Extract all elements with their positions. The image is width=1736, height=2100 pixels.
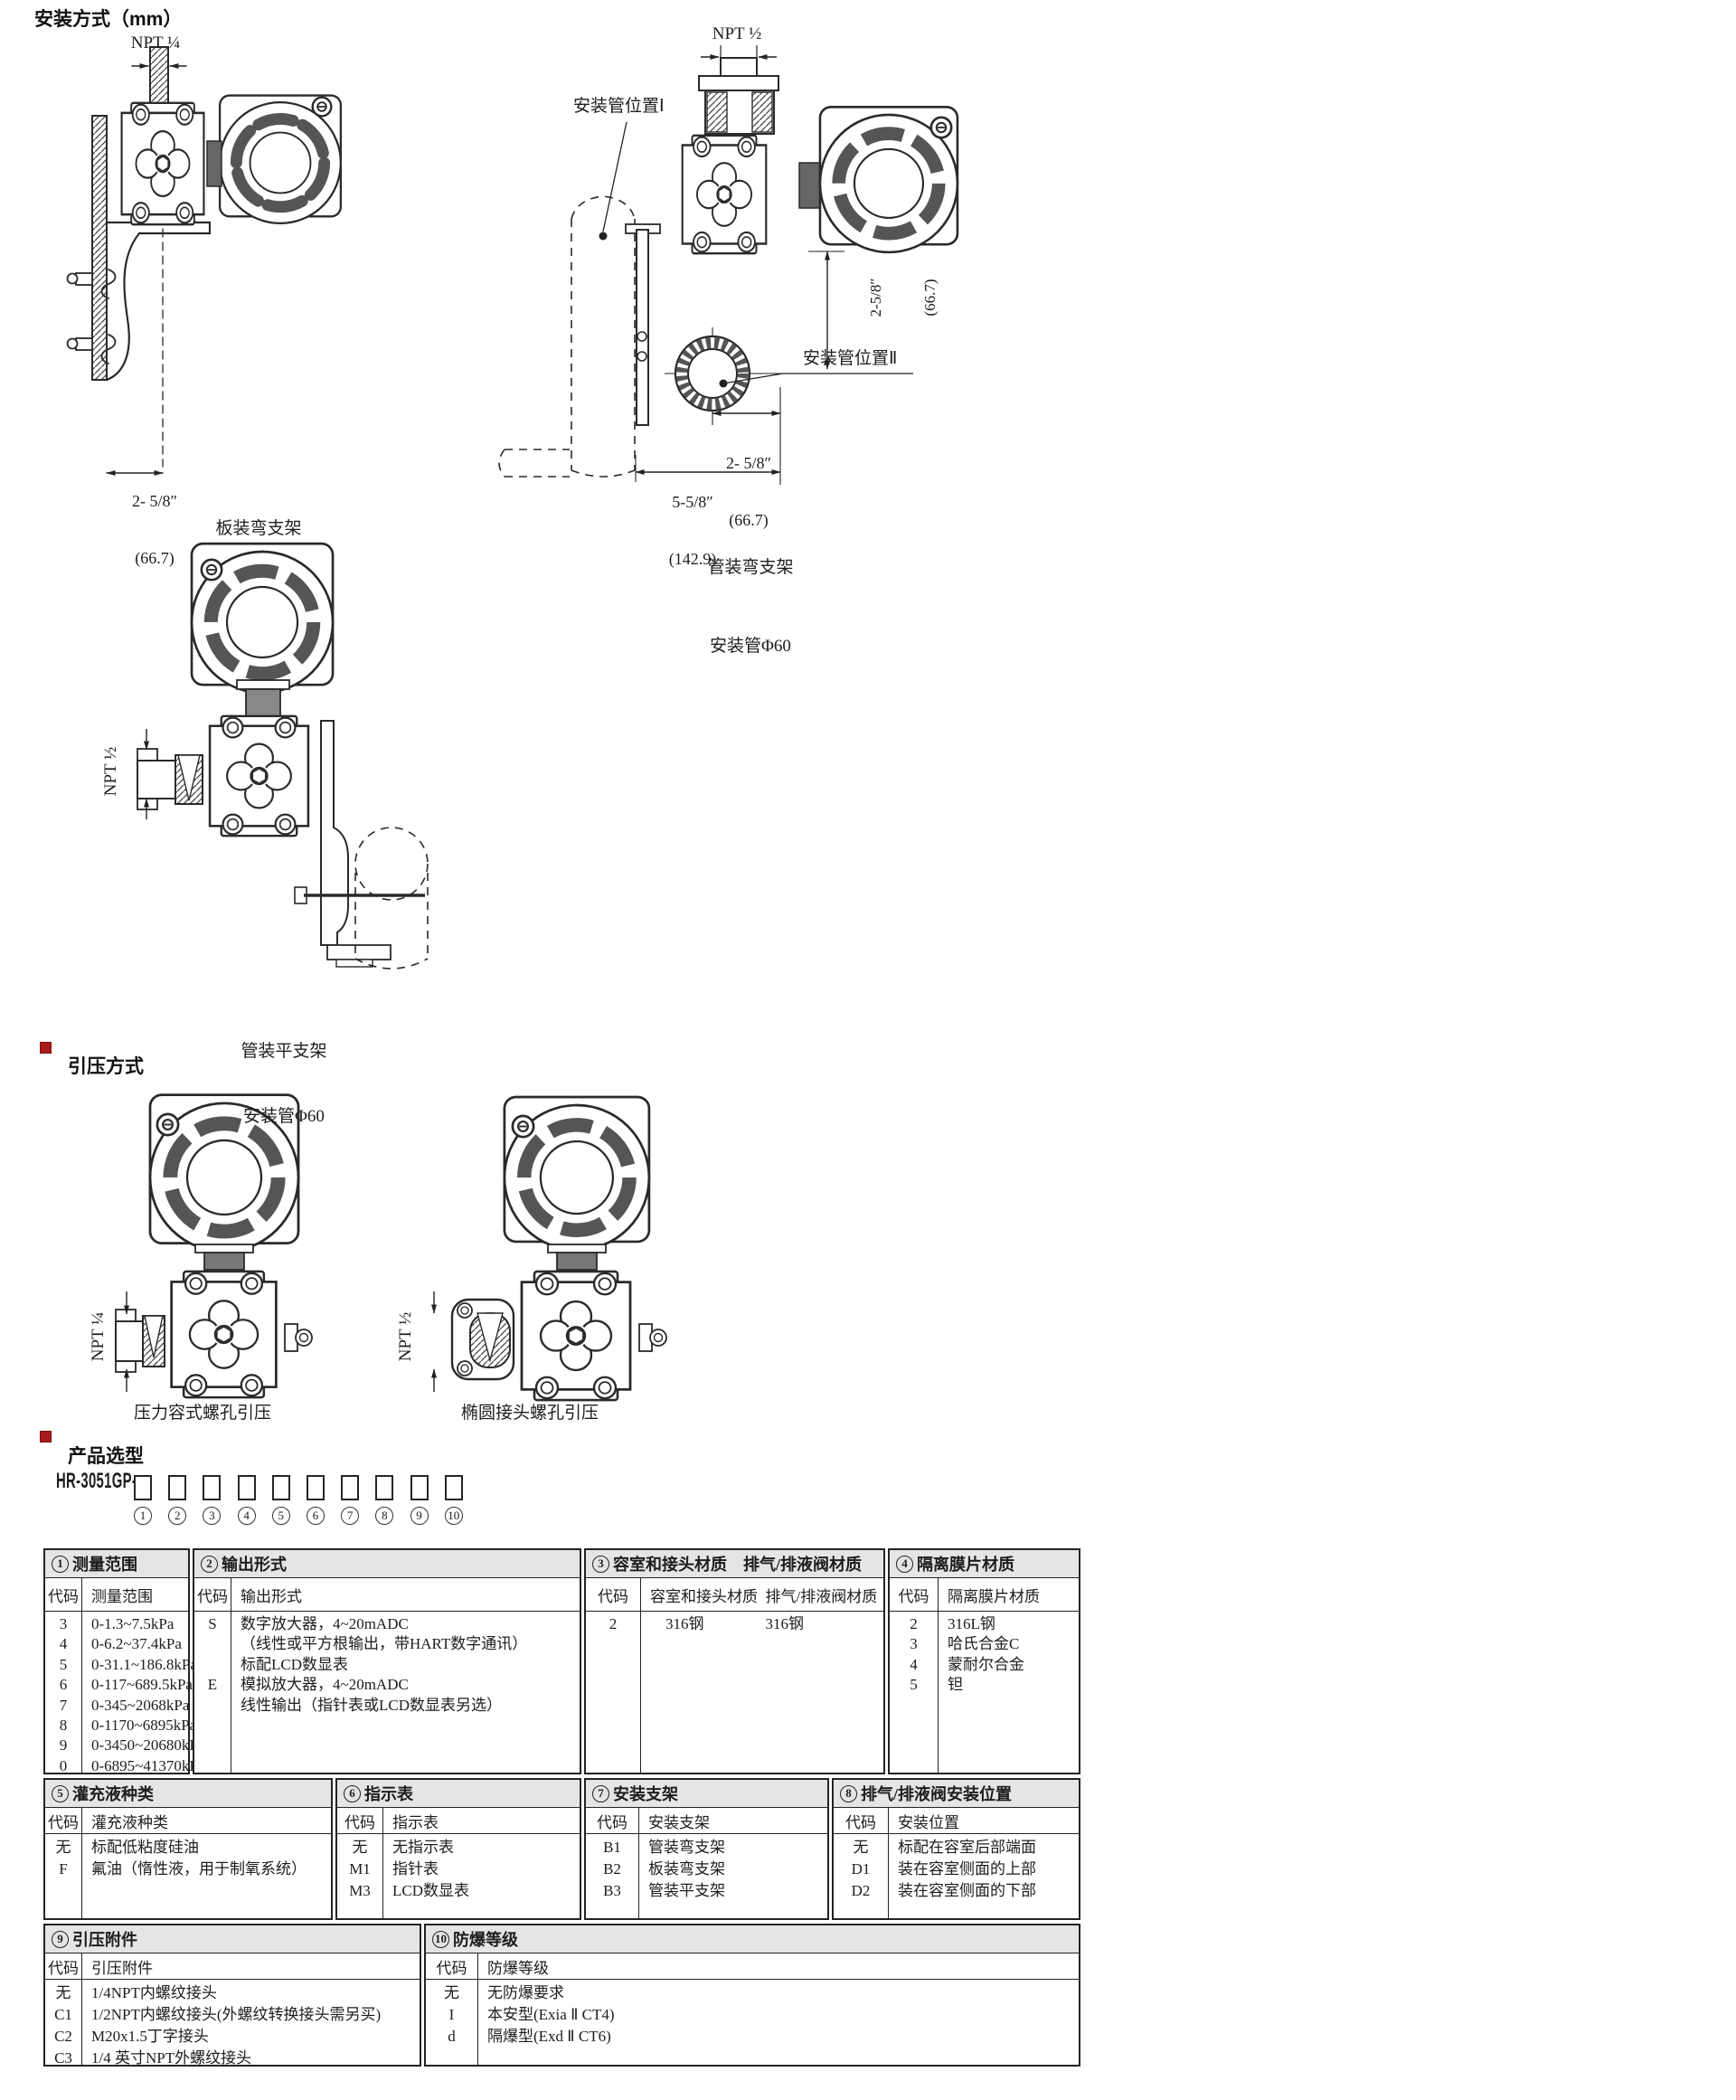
code-column: 无Id [426, 1980, 478, 2065]
section-title: 灌充液种类 [72, 1782, 154, 1805]
section-body: 无M1M3无指示表指针表LCD数显表 [337, 1834, 580, 1918]
section-number: 9 [52, 1931, 69, 1948]
value-cell: 1/4NPT内螺纹接头 [91, 1982, 420, 2004]
code-column: SE [194, 1612, 231, 1773]
code-cell [194, 1696, 231, 1716]
section-subheader: 代码防爆等级 [426, 1953, 1079, 1980]
value-column-header: 指示表 [383, 1808, 439, 1833]
section-header: 9引压附件 [45, 1925, 420, 1953]
value-cell: 316L钢 [948, 1614, 1079, 1634]
section-header: 7安装支架 [586, 1780, 827, 1808]
fig2-vertical-dimension: 2-5/8″ (66.7) [831, 254, 869, 341]
fig4-npt-label: NPT ¼ [89, 1295, 114, 1378]
value-column: 数字放大器，4~20mADC（线性或平方根输出，带HART数字通讯）标配LCD数… [231, 1612, 580, 1773]
code-cell: 4 [45, 1634, 81, 1654]
value-cell: 标配LCD数显表 [241, 1655, 580, 1675]
pressure-section-marker-icon [40, 1042, 52, 1054]
table-section-7: 7安装支架代码安装支架B1B2B3管装弯支架板装弯支架管装平支架 [584, 1778, 829, 1920]
section-header: 5灌充液种类 [45, 1780, 331, 1808]
section-title: 隔离膜片材质 [917, 1552, 1014, 1575]
code-cell: 9 [45, 1736, 81, 1755]
code-cell [194, 1655, 231, 1675]
value-column-header: 安装位置 [889, 1808, 959, 1833]
table-section-9: 9引压附件代码引压附件无C1C2C31/4NPT内螺纹接头1/2NPT内螺纹接头… [43, 1924, 421, 2067]
section-title: 输出形式 [222, 1552, 287, 1575]
position-number: 7 [341, 1507, 359, 1525]
table-section-3: 3容室和接头材质 排气/排液阀材质代码容室和接头材质 排气/排液阀材质2 316… [584, 1548, 885, 1774]
section-number: 6 [344, 1785, 361, 1802]
code-cell: 无 [45, 1837, 81, 1859]
panel-bracket-figure [68, 47, 341, 473]
value-cell: 本安型(Exia Ⅱ CT4) [487, 2004, 1079, 2026]
section-header: 6指示表 [337, 1780, 580, 1808]
fig3-npt-label: NPT ½ [101, 730, 127, 813]
table-section-4: 4隔离膜片材质代码隔离膜片材质2345316L钢哈氏合金C蒙耐尔合金钽 [888, 1548, 1080, 1774]
model-position: 3 [203, 1475, 237, 1525]
code-column-header: 代码 [834, 1808, 889, 1833]
value-cell: 指针表 [392, 1859, 580, 1880]
model-position: 9 [410, 1475, 445, 1525]
code-cell: 无 [337, 1837, 382, 1859]
fig1-dimension: 2- 5/8″ (66.7) [101, 454, 208, 587]
model-prefix: HR-3051GP- [56, 1469, 137, 1494]
code-column-header: 代码 [586, 1578, 641, 1611]
code-cell: 7 [45, 1696, 81, 1716]
section-subheader: 代码灌充液种类 [45, 1808, 331, 1834]
section-number: 4 [896, 1556, 913, 1573]
value-cell: M20x1.5丁字接头 [91, 2026, 420, 2048]
fig4-caption: 压力容式螺孔引压 [134, 1404, 268, 1424]
value-cell: 316钢 316钢 [650, 1614, 883, 1634]
section-subheader: 代码测量范围 [45, 1578, 188, 1612]
code-cell: 无 [834, 1837, 888, 1859]
value-column: 标配在容室后部端面装在容室侧面的上部装在容室侧面的下部 [889, 1834, 1079, 1918]
section-title: 指示表 [364, 1782, 413, 1805]
code-cell: F [45, 1859, 81, 1880]
code-column: 无D1D2 [834, 1834, 889, 1918]
code-column-header: 代码 [45, 1808, 82, 1833]
value-cell: 蒙耐尔合金 [948, 1655, 1079, 1675]
model-code-box [203, 1475, 221, 1500]
datasheet-page: 安装方式（mm） NPT ¼ 2- 5/8″ (66.7) 板装弯支架 NPT … [0, 0, 1736, 2100]
value-cell: （线性或平方根输出，带HART数字通讯） [241, 1634, 580, 1654]
value-cell: 0-345~2068kPa [91, 1696, 204, 1716]
section-subheader: 代码输出形式 [194, 1578, 580, 1612]
code-cell: E [194, 1675, 231, 1695]
table-section-8: 8排气/排液阀安装位置代码安装位置无D1D2标配在容室后部端面装在容室侧面的上部… [832, 1778, 1080, 1920]
value-cell: 模拟放大器，4~20mADC [241, 1675, 580, 1695]
value-column: 316钢 316钢 [641, 1612, 883, 1773]
section-title: 防爆等级 [453, 1927, 518, 1951]
section-number: 2 [201, 1556, 218, 1573]
section-body: SE数字放大器，4~20mADC（线性或平方根输出，带HART数字通讯）标配LC… [194, 1612, 580, 1773]
code-column-header: 代码 [890, 1578, 939, 1611]
code-column: 2 [586, 1612, 641, 1773]
mounting-heading: 安装方式（mm） [34, 5, 182, 32]
fig5-caption: 椭圆接头螺孔引压 [461, 1404, 599, 1424]
fig2-npt-label: NPT ½ [698, 24, 776, 44]
value-cell: 标配低粘度硅油 [91, 1837, 331, 1859]
position-number: 1 [134, 1507, 152, 1525]
model-position: 7 [341, 1475, 375, 1525]
model-position: 4 [238, 1475, 272, 1525]
code-cell: B2 [586, 1859, 638, 1880]
model-position: 8 [375, 1475, 410, 1525]
section-body: 无C1C2C31/4NPT内螺纹接头1/2NPT内螺纹接头(外螺纹转换接头需另买… [45, 1980, 420, 2065]
code-column: B1B2B3 [586, 1834, 639, 1918]
code-column-header: 代码 [426, 1953, 478, 1979]
table-section-10: 10防爆等级代码防爆等级无Id无防爆要求本安型(Exia Ⅱ CT4)隔爆型(E… [424, 1924, 1080, 2067]
table-section-5: 5灌充液种类代码灌充液种类无F标配低粘度硅油氟油（惰性液，用于制氧系统） [43, 1778, 333, 1920]
value-cell: 氟油（惰性液，用于制氧系统） [91, 1859, 331, 1880]
section-number: 1 [52, 1556, 69, 1573]
position-number: 9 [410, 1507, 429, 1525]
code-cell: 5 [890, 1675, 938, 1695]
section-number: 3 [592, 1556, 609, 1573]
table-band-3: 9引压附件代码引压附件无C1C2C31/4NPT内螺纹接头1/2NPT内螺纹接头… [43, 1924, 1080, 2067]
code-column-header: 代码 [45, 1578, 82, 1611]
value-cell: 0-6.2~37.4kPa [91, 1634, 204, 1654]
section-subheader: 代码容室和接头材质 排气/排液阀材质 [586, 1578, 883, 1612]
section-subheader: 代码引压附件 [45, 1953, 420, 1980]
model-code-box [272, 1475, 290, 1500]
value-cell: 1/4 英寸NPT外螺纹接头 [91, 2048, 420, 2069]
section-header: 1测量范围 [45, 1550, 188, 1578]
section-title: 安装支架 [613, 1782, 678, 1805]
value-cell: 装在容室侧面的下部 [898, 1880, 1079, 1902]
value-column: 无防爆要求本安型(Exia Ⅱ CT4)隔爆型(Exd Ⅱ CT6) [478, 1980, 1079, 2065]
position-number: 10 [445, 1507, 463, 1525]
code-cell: C1 [45, 2004, 81, 2026]
table-section-1: 1测量范围代码测量范围345678900-1.3~7.5kPa0-6.2~37.… [43, 1548, 190, 1774]
code-cell: 3 [45, 1614, 81, 1634]
model-position: 5 [272, 1475, 307, 1525]
section-body: 2 316钢 316钢 [586, 1612, 883, 1773]
value-cell: 管装平支架 [648, 1880, 827, 1902]
fig2-caption: 管装弯支架 安装管Φ60 [694, 502, 807, 686]
code-cell: I [426, 2004, 477, 2026]
value-cell: 0-31.1~186.8kPa [91, 1655, 204, 1675]
value-cell: LCD数显表 [392, 1880, 580, 1902]
code-cell: C2 [45, 2026, 81, 2048]
section-subheader: 代码安装位置 [834, 1808, 1079, 1834]
code-column-header: 代码 [45, 1953, 82, 1979]
section-header: 4隔离膜片材质 [890, 1550, 1079, 1578]
table-section-6: 6指示表代码指示表无M1M3无指示表指针表LCD数显表 [335, 1778, 581, 1920]
code-cell: 2 [586, 1614, 640, 1634]
section-body: B1B2B3管装弯支架板装弯支架管装平支架 [586, 1834, 827, 1918]
value-column-header: 隔离膜片材质 [939, 1578, 1040, 1611]
code-cell: d [426, 2026, 477, 2048]
value-column: 316L钢哈氏合金C蒙耐尔合金钽 [939, 1612, 1079, 1773]
code-cell: 无 [426, 1982, 477, 2004]
code-cell: 8 [45, 1716, 81, 1736]
fig1-caption: 板装弯支架 [203, 519, 314, 539]
value-column-header: 测量范围 [82, 1578, 153, 1611]
table-section-2: 2输出形式代码输出形式SE数字放大器，4~20mADC（线性或平方根输出，带HA… [193, 1548, 581, 1774]
section-number: 10 [432, 1931, 449, 1948]
position-number: 5 [272, 1507, 290, 1525]
code-column-header: 代码 [586, 1808, 639, 1833]
value-cell: 钽 [948, 1675, 1079, 1695]
model-position: 1 [134, 1475, 168, 1525]
value-cell: 线性输出（指针表或LCD数显表另选） [241, 1696, 580, 1716]
pipe-flat-bracket-figure [137, 544, 428, 969]
code-column-header: 代码 [337, 1808, 383, 1833]
code-cell: D2 [834, 1880, 888, 1902]
value-column: 管装弯支架板装弯支架管装平支架 [639, 1834, 827, 1918]
position-number: 4 [238, 1507, 256, 1525]
section-header: 3容室和接头材质 排气/排液阀材质 [586, 1550, 883, 1578]
code-cell: 5 [45, 1655, 81, 1675]
value-cell: 标配在容室后部端面 [898, 1837, 1079, 1859]
fig1-npt-label: NPT ¼ [121, 33, 190, 53]
model-position: 2 [168, 1475, 203, 1525]
model-position: 10 [445, 1475, 479, 1525]
section-body: 2345316L钢哈氏合金C蒙耐尔合金钽 [890, 1612, 1079, 1773]
value-cell: 隔爆型(Exd Ⅱ CT6) [487, 2026, 1079, 2048]
model-code-box [341, 1475, 359, 1500]
section-title: 引压附件 [72, 1927, 137, 1951]
section-header: 8排气/排液阀安装位置 [834, 1780, 1079, 1808]
model-position: 6 [307, 1475, 341, 1525]
model-boxes: 12345678910 [134, 1475, 479, 1525]
value-cell: 0-117~689.5kPa [91, 1675, 204, 1695]
selection-heading: 产品选型 [68, 1442, 144, 1469]
section-number: 5 [52, 1785, 69, 1802]
value-column: 无指示表指针表LCD数显表 [383, 1834, 580, 1918]
section-title: 排气/排液阀安装位置 [861, 1782, 1012, 1805]
value-cell: 0-3450~20680kPa [91, 1736, 204, 1755]
fig3-caption: 管装平支架 安装管Φ60 [228, 998, 340, 1149]
code-column: 34567890 [45, 1612, 82, 1773]
position-number: 8 [375, 1507, 393, 1525]
model-code-box [168, 1475, 186, 1500]
code-column-header: 代码 [194, 1578, 231, 1611]
position-number: 3 [203, 1507, 221, 1525]
section-body: 345678900-1.3~7.5kPa0-6.2~37.4kPa0-31.1~… [45, 1612, 188, 1773]
value-column-header: 输出形式 [231, 1578, 302, 1611]
value-cell: 板装弯支架 [648, 1859, 827, 1880]
code-cell: 6 [45, 1675, 81, 1695]
value-cell: 哈氏合金C [948, 1634, 1079, 1654]
model-code-box [410, 1475, 429, 1500]
model-code-box [307, 1475, 325, 1500]
selection-section-marker-icon [40, 1431, 52, 1443]
section-body: 无D1D2标配在容室后部端面装在容室侧面的上部装在容室侧面的下部 [834, 1834, 1079, 1918]
code-cell: 4 [890, 1655, 938, 1675]
code-cell: B3 [586, 1880, 638, 1902]
value-column-header: 防爆等级 [478, 1953, 549, 1979]
pressure-heading: 引压方式 [68, 1052, 144, 1079]
value-cell: 1/2NPT内螺纹接头(外螺纹转换接头需另买) [91, 2004, 420, 2026]
code-cell: 2 [890, 1614, 938, 1634]
code-cell [194, 1634, 231, 1654]
code-column: 无M1M3 [337, 1834, 383, 1918]
model-code-box [134, 1475, 152, 1500]
section-number: 8 [840, 1785, 857, 1802]
code-cell: 3 [890, 1634, 938, 1654]
section-header: 2输出形式 [194, 1550, 580, 1578]
section-subheader: 代码隔离膜片材质 [890, 1578, 1079, 1612]
section-subheader: 代码安装支架 [586, 1808, 827, 1834]
section-title: 容室和接头材质 排气/排液阀材质 [613, 1552, 862, 1575]
oval-connector-tap-figure [434, 1097, 666, 1400]
value-cell: 管装弯支架 [648, 1837, 827, 1859]
code-column: 无F [45, 1834, 82, 1918]
section-title: 测量范围 [72, 1552, 137, 1575]
position-number: 2 [168, 1507, 186, 1525]
fig2-pipe-pos1-label: 安装管位置Ⅰ [573, 97, 691, 117]
value-column: 0-1.3~7.5kPa0-6.2~37.4kPa0-31.1~186.8kPa… [82, 1612, 204, 1773]
fig5-npt-label: NPT ½ [396, 1295, 421, 1378]
section-subheader: 代码指示表 [337, 1808, 580, 1834]
table-band-2: 5灌充液种类代码灌充液种类无F标配低粘度硅油氟油（惰性液，用于制氧系统）6指示表… [43, 1778, 1080, 1920]
code-cell: B1 [586, 1837, 638, 1859]
code-column: 2345 [890, 1612, 939, 1773]
value-cell: 装在容室侧面的上部 [898, 1859, 1079, 1880]
model-code-box [445, 1475, 463, 1500]
code-cell: M3 [337, 1880, 382, 1902]
value-cell: 数字放大器，4~20mADC [241, 1614, 580, 1634]
code-cell: S [194, 1614, 231, 1634]
code-cell: D1 [834, 1859, 888, 1880]
value-column-header: 安装支架 [639, 1808, 710, 1833]
value-cell: 0-6895~41370kPa [91, 1756, 204, 1776]
section-header: 10防爆等级 [426, 1925, 1079, 1953]
value-cell: 无指示表 [392, 1837, 580, 1859]
code-cell: 无 [45, 1982, 81, 2004]
value-column: 1/4NPT内螺纹接头1/2NPT内螺纹接头(外螺纹转换接头需另买)M20x1.… [82, 1980, 420, 2065]
code-cell: C3 [45, 2048, 81, 2069]
model-code-box [238, 1475, 256, 1500]
model-code-box [375, 1475, 393, 1500]
code-cell: 0 [45, 1756, 81, 1776]
value-column: 标配低粘度硅油氟油（惰性液，用于制氧系统） [82, 1834, 331, 1918]
value-column-header: 引压附件 [82, 1953, 153, 1979]
section-number: 7 [592, 1785, 609, 1802]
value-cell: 0-1.3~7.5kPa [91, 1614, 204, 1634]
value-column-header: 灌充液种类 [82, 1808, 168, 1833]
section-body: 无F标配低粘度硅油氟油（惰性液，用于制氧系统） [45, 1834, 331, 1918]
value-cell: 0-1170~6895kPa [91, 1716, 204, 1736]
section-body: 无Id无防爆要求本安型(Exia Ⅱ CT4)隔爆型(Exd Ⅱ CT6) [426, 1980, 1079, 2065]
position-number: 6 [307, 1507, 325, 1525]
fig2-pipe-pos2-label: 安装管位置Ⅱ [803, 349, 920, 369]
table-band-1: 1测量范围代码测量范围345678900-1.3~7.5kPa0-6.2~37.… [43, 1548, 1080, 1774]
value-cell: 无防爆要求 [487, 1982, 1079, 2004]
code-column: 无C1C2C3 [45, 1980, 82, 2065]
value-column-header: 容室和接头材质 排气/排液阀材质 [641, 1578, 877, 1611]
code-cell: M1 [337, 1859, 382, 1880]
